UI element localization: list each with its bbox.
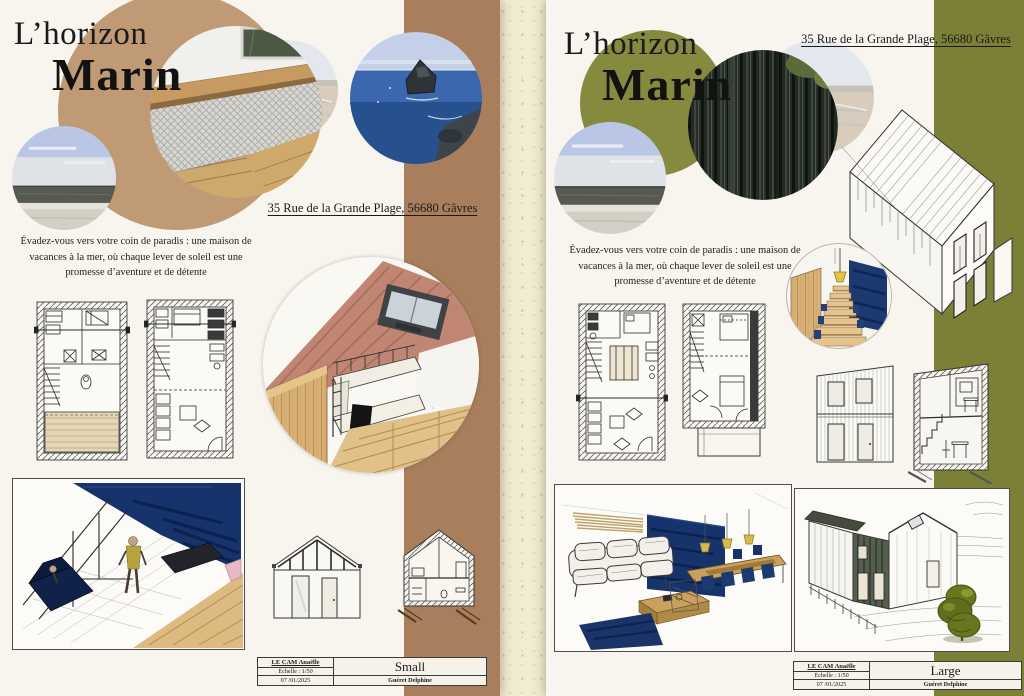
title-block-author: LE CAM Anaëlle xyxy=(794,662,870,672)
address-line: 35 Rue de la Grande Plage, 56680 Gâvres xyxy=(792,32,1020,47)
intro-paragraph: Évadez-vous vers votre coin de paradis :… xyxy=(12,234,260,281)
title-block-date: 07 /01/2025 xyxy=(794,680,870,689)
title-block: LE CAM Anaëlle Échelle : 1/50 07 /01/202… xyxy=(793,661,1022,690)
title-block-drafter: Guéret Delphine xyxy=(334,676,486,685)
title-block: LE CAM Anaëlle Échelle : 1/50 07 /01/202… xyxy=(257,657,487,686)
sketch-bunk-room-circle xyxy=(263,257,479,473)
poster-title-line2: Marin xyxy=(602,58,732,111)
photo-ocean-rock xyxy=(350,32,482,164)
intro-paragraph: Évadez-vous vers votre coin de paradis :… xyxy=(560,243,810,290)
drawing-front-elevation xyxy=(266,530,368,630)
ocean-photo-drawing xyxy=(350,32,482,164)
sea-photo-drawing xyxy=(12,126,116,230)
title-block-variant: Small xyxy=(334,658,486,676)
title-block-drafter: Guéret Delphine xyxy=(870,680,1021,689)
sketch-exterior-house xyxy=(794,488,1010,652)
floor-plan-ground xyxy=(144,294,236,464)
drawing-cross-section-right xyxy=(908,354,998,484)
poster-large-variant: L’horizon Marin 35 Rue de la Grande Plag… xyxy=(546,0,1024,696)
floor-plan-ground-right xyxy=(576,298,668,466)
floor-plan-upper-right xyxy=(680,298,768,460)
title-block-scale: Échelle : 1/50 xyxy=(794,672,870,680)
photo-sea-horizon xyxy=(12,126,116,230)
sketch-attic-living-room xyxy=(12,478,245,650)
drawing-cross-section xyxy=(396,522,482,632)
photo-sea-horizon-right xyxy=(554,122,666,234)
photo-of-two-posters: { "scene": { "description": "Two archite… xyxy=(0,0,1024,696)
drawing-facade-elevation xyxy=(812,356,898,468)
title-block-variant: Large xyxy=(870,662,1021,680)
floor-plan-upper xyxy=(34,294,130,466)
title-block-scale: Échelle : 1/50 xyxy=(258,668,334,676)
address-line: 35 Rue de la Grande Plage, 56680 Gâvres xyxy=(255,201,490,216)
title-block-author: LE CAM Anaëlle xyxy=(258,658,334,668)
sketch-living-dining-room xyxy=(554,484,792,652)
title-block-date: 07 /01/2025 xyxy=(258,676,334,685)
poster-small-variant: L’horizon Marin 35 Rue de la Grande Plag… xyxy=(0,0,500,696)
poster-title-line2: Marin xyxy=(52,48,182,101)
